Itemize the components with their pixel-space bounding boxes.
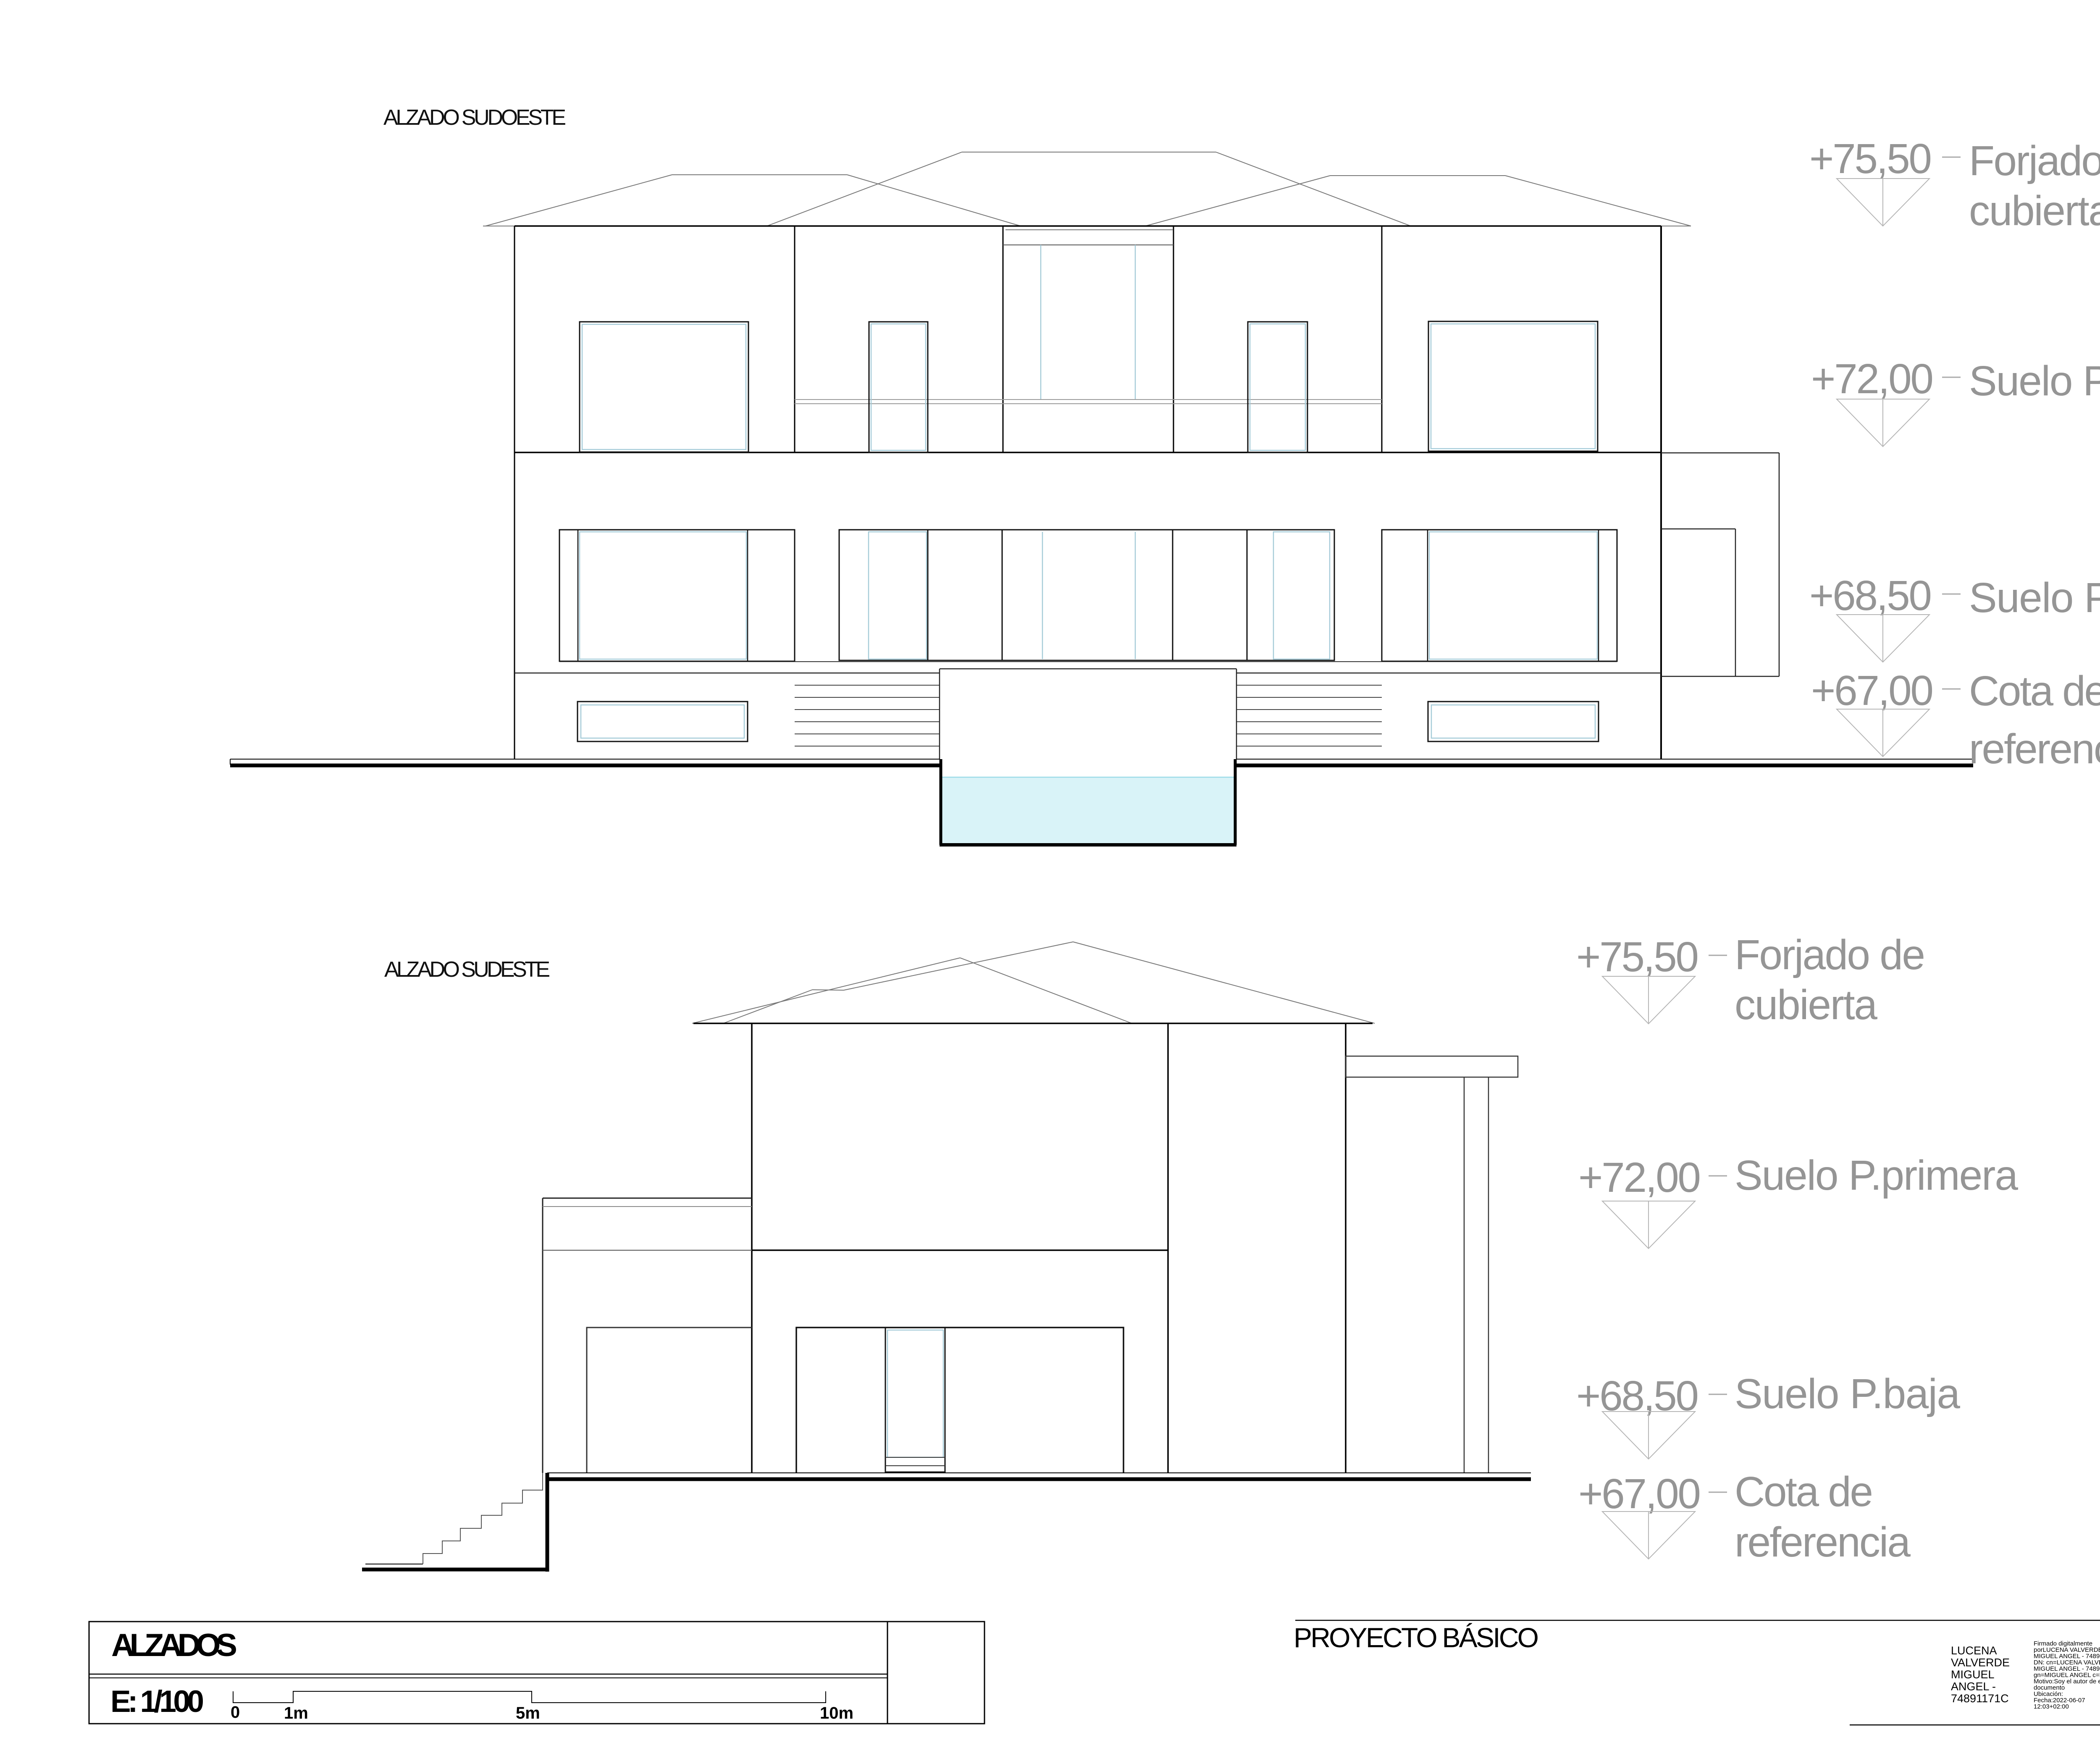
svg-text:ALZADO SUDESTE: ALZADO SUDESTE <box>384 957 550 982</box>
svg-text:+72,00: +72,00 <box>1811 355 1934 402</box>
svg-text:0: 0 <box>231 1703 240 1722</box>
svg-text:ALZADO SUDOESTE: ALZADO SUDOESTE <box>383 105 566 130</box>
svg-text:+68,50: +68,50 <box>1576 1372 1699 1420</box>
svg-text:+68,50: +68,50 <box>1809 572 1932 619</box>
svg-text:+67,00: +67,00 <box>1578 1470 1701 1517</box>
svg-text:Forjado de: Forjado de <box>1735 931 1925 978</box>
svg-text:12:03+02:00: 12:03+02:00 <box>2034 1703 2069 1710</box>
svg-text:ALZADOS: ALZADOS <box>111 1627 237 1663</box>
svg-text:PROYECTO BÁSICO: PROYECTO BÁSICO <box>1294 1622 1539 1653</box>
svg-text:Suelo P.baja: Suelo P.baja <box>1969 574 2100 621</box>
svg-text:Cota de: Cota de <box>1735 1468 1873 1515</box>
svg-text:Cota de: Cota de <box>1969 668 2100 715</box>
svg-text:E: 1/100: E: 1/100 <box>110 1685 204 1719</box>
svg-text:cubierta: cubierta <box>1735 981 1877 1028</box>
svg-text:referencia: referencia <box>1735 1519 1911 1566</box>
svg-text:MIGUEL: MIGUEL <box>1951 1668 1995 1681</box>
svg-text:Suelo P.primera: Suelo P.primera <box>1735 1152 2018 1199</box>
svg-text:Suelo P.baja: Suelo P.baja <box>1735 1370 1960 1417</box>
svg-text:Forjado de: Forjado de <box>1969 137 2100 184</box>
svg-text:LUCENA: LUCENA <box>1951 1644 1997 1657</box>
svg-text:74891171C: 74891171C <box>1951 1692 2009 1705</box>
svg-text:+72,00: +72,00 <box>1578 1154 1701 1201</box>
svg-text:1m: 1m <box>284 1704 308 1722</box>
svg-text:+75,50: +75,50 <box>1809 135 1932 182</box>
svg-text:ANGEL -: ANGEL - <box>1951 1680 1996 1693</box>
svg-text:+75,50: +75,50 <box>1576 933 1699 981</box>
svg-text:5m: 5m <box>516 1704 540 1722</box>
svg-text:VALVERDE: VALVERDE <box>1951 1656 2010 1669</box>
svg-text:+67,00: +67,00 <box>1811 667 1934 714</box>
svg-text:cubierta: cubierta <box>1969 187 2100 234</box>
svg-text:Suelo P.primera: Suelo P.primera <box>1969 358 2100 405</box>
svg-text:referencia: referencia <box>1969 726 2100 773</box>
svg-text:10m: 10m <box>820 1704 853 1722</box>
